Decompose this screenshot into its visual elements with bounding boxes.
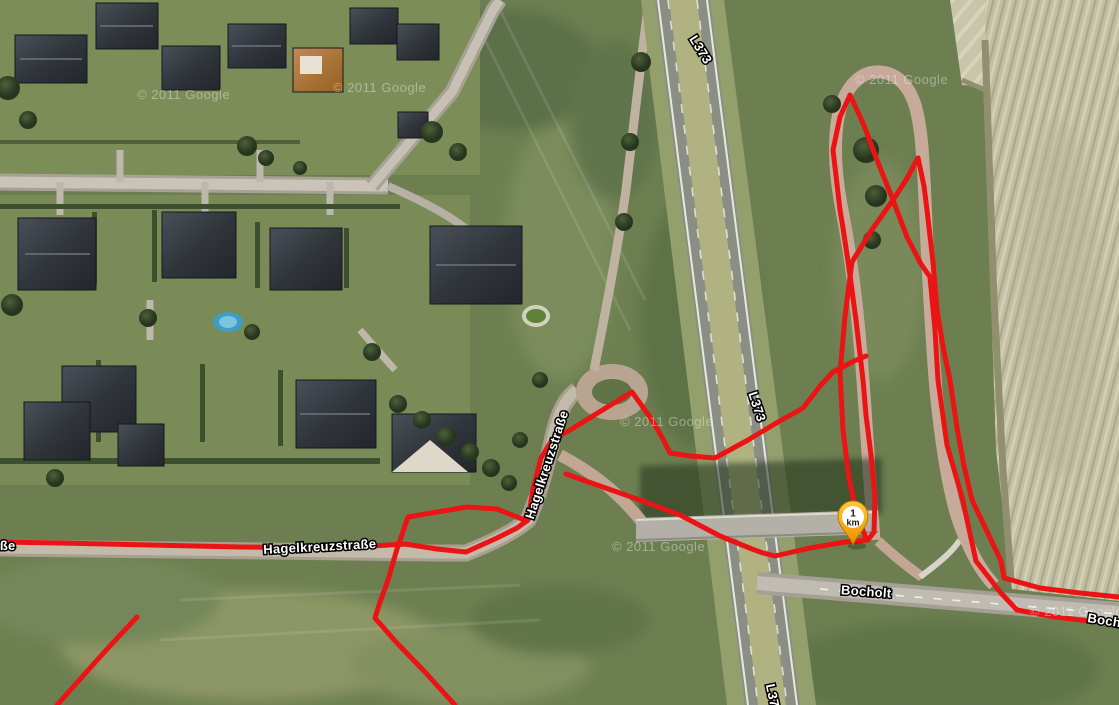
garden-pond xyxy=(526,309,546,323)
watermark-text: © 2011 Google xyxy=(137,87,230,102)
watermark-text: © 2011 Google xyxy=(620,414,713,429)
watermark-text: © 2011 Google xyxy=(333,80,426,95)
watermark-text: © 2011 Google xyxy=(855,72,948,87)
satellite-map[interactable]: © 2011 Google© 2011 Google© 2011 Google©… xyxy=(0,0,1119,705)
residential-area xyxy=(0,0,550,487)
pin-label-bottom: km xyxy=(846,518,859,528)
watermark-text: © 2011 Google xyxy=(612,539,705,554)
map-canvas[interactable]: © 2011 Google© 2011 Google© 2011 Google©… xyxy=(0,0,1119,705)
road-label-strasse-cut-left: Hagelkreuzstraße xyxy=(0,538,16,553)
